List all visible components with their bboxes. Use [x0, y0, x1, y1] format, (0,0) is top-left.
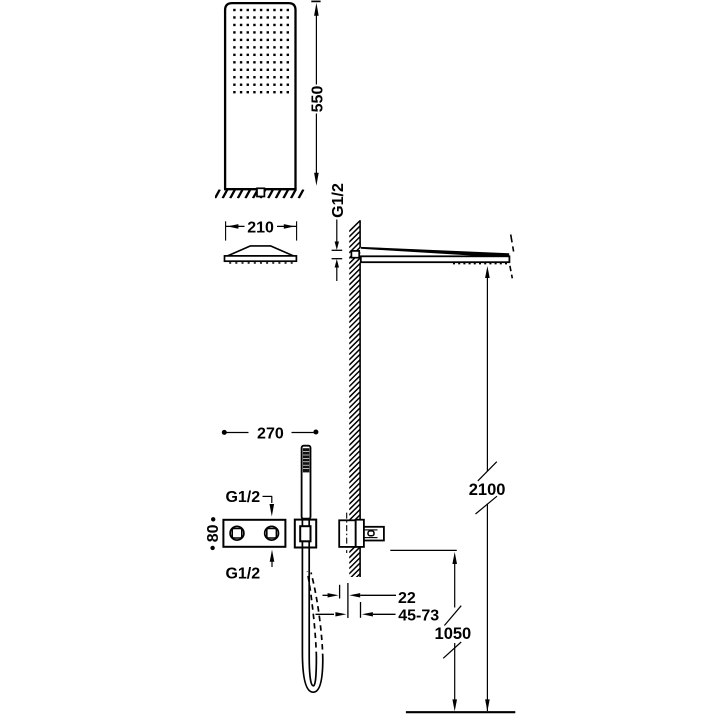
svg-text:2100: 2100: [469, 481, 506, 499]
svg-text:1050: 1050: [435, 625, 472, 643]
svg-text:210: 210: [247, 219, 274, 236]
svg-text:80: 80: [205, 524, 222, 542]
svg-text:G1/2: G1/2: [225, 489, 260, 506]
svg-text:G1/2: G1/2: [225, 566, 260, 583]
svg-text:45-73: 45-73: [398, 607, 439, 624]
svg-text:270: 270: [257, 426, 284, 443]
svg-text:550: 550: [309, 86, 326, 113]
svg-text:G1/2: G1/2: [330, 183, 347, 218]
svg-text:22: 22: [398, 590, 416, 607]
